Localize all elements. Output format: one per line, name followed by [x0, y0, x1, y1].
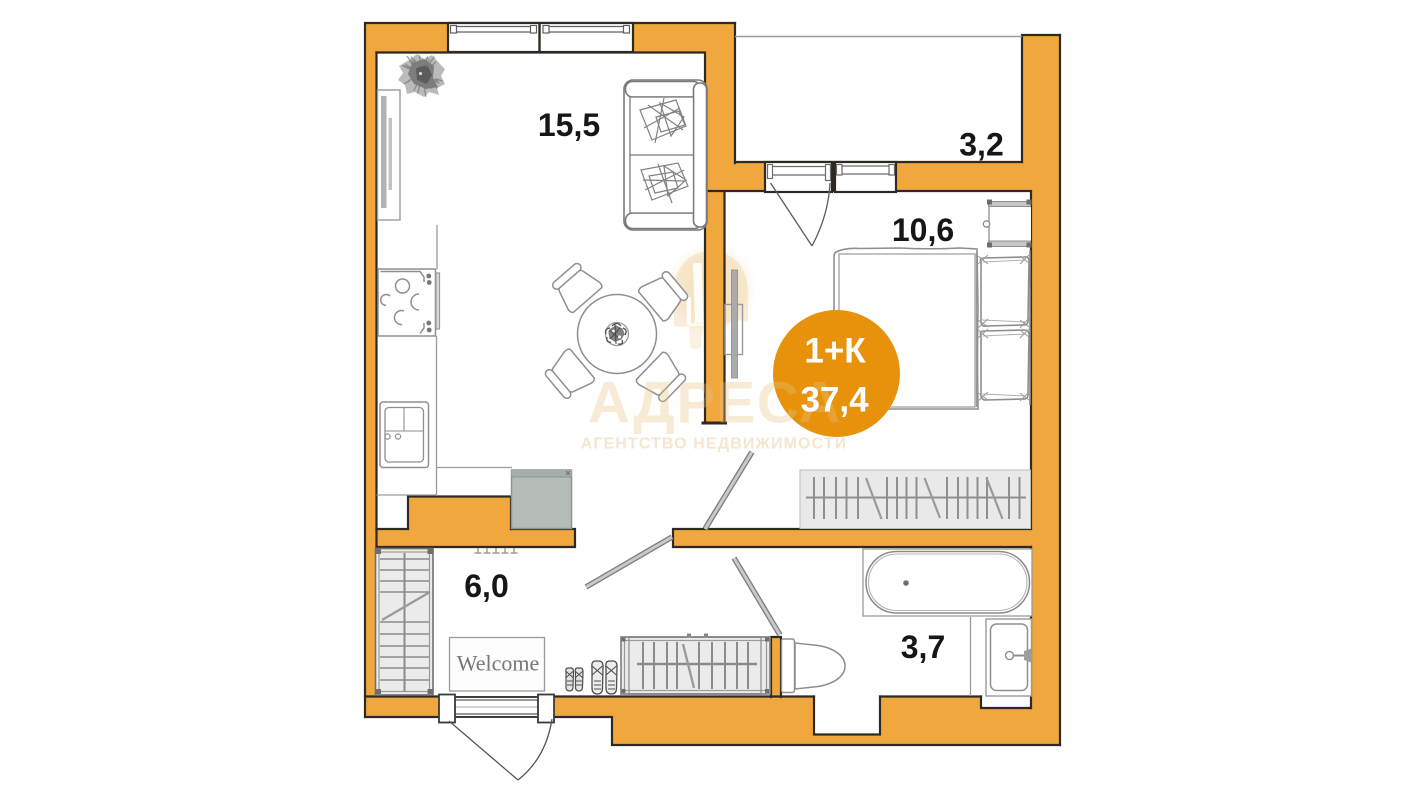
svg-text:Welcome: Welcome	[457, 651, 540, 676]
svg-text:10,6: 10,6	[892, 212, 954, 248]
svg-text:1+К: 1+К	[804, 332, 866, 371]
svg-text:37,4: 37,4	[800, 381, 869, 420]
svg-text:15,5: 15,5	[538, 107, 600, 143]
svg-text:3,2: 3,2	[959, 127, 1003, 163]
svg-text:6,0: 6,0	[464, 568, 508, 604]
svg-text:3,7: 3,7	[901, 629, 945, 665]
svg-text:АГЕНТСТВО НЕДВИЖИМОСТИ: АГЕНТСТВО НЕДВИЖИМОСТИ	[581, 436, 848, 453]
